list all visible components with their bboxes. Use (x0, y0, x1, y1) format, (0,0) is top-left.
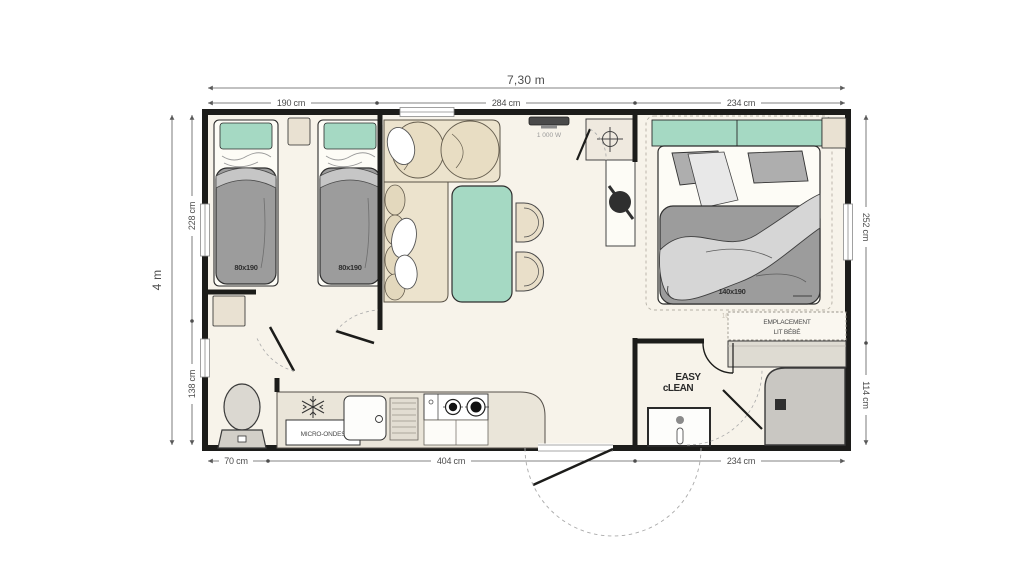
shower-drain-icon (775, 399, 786, 410)
microwave-label: MICRO-ONDES (301, 431, 347, 438)
drainboard (390, 398, 418, 440)
dim-total-width: 7,30 m (208, 73, 845, 88)
dim-right-2: 114 cm (861, 381, 871, 409)
dim-total-width-label: 7,30 m (507, 73, 545, 87)
flush-button (238, 436, 246, 442)
dim-right-1: 252 cm (861, 213, 871, 241)
pillow-teal (220, 123, 272, 149)
dim-total-height: 4 m (150, 115, 172, 445)
heater-power-label: 1 000 W (537, 132, 562, 139)
shower (765, 368, 845, 445)
washbasin (648, 408, 710, 446)
dim-top-3: 234 cm (727, 98, 755, 108)
hall-shelf (213, 296, 245, 326)
pillow-gray (748, 151, 808, 183)
baby-bed-label-1: EMPLACEMENT (763, 319, 811, 326)
bedside-cabinet (822, 118, 846, 148)
bed2-size-label: 80x190 (338, 263, 361, 272)
kitchen-sink (344, 396, 418, 440)
baby-shelf (728, 341, 846, 367)
single-bed-2: 80x190 (318, 120, 382, 286)
floor-plan-page: 7,30 m 190 cm 284 cm 234 cm 4 m (0, 0, 1024, 574)
stove (424, 394, 489, 445)
faucet-icon (677, 428, 683, 444)
drain-icon (676, 416, 684, 424)
dim-top-1: 190 cm (277, 98, 305, 108)
entrance-door-leaf (533, 449, 613, 485)
dim-top-segments: 190 cm 284 cm 234 cm (208, 96, 845, 109)
window-left-wc (201, 339, 210, 377)
bed1-size-label: 80x190 (234, 263, 257, 272)
dim-left-2: 138 cm (187, 370, 197, 398)
window-right-master (844, 204, 853, 260)
dim-bottom-1: 70 cm (224, 456, 248, 466)
toilet-bowl (224, 384, 260, 430)
baby-bed-label-2: LIT BÉBÉ (774, 327, 802, 336)
logo-line-1: EASY (675, 372, 701, 383)
dim-right-segments: 252 cm 114 cm (860, 115, 873, 445)
nightstand (288, 118, 310, 145)
floor-plan: 7,30 m 190 cm 284 cm 234 cm 4 m (0, 0, 1024, 574)
dim-left-1: 228 cm (187, 202, 197, 230)
baby-bed-area: EMPLACEMENT LIT BÉBÉ (728, 312, 846, 367)
double-bed-size-label: 140x190 (718, 287, 745, 296)
dim-bottom-2: 404 cm (437, 456, 465, 466)
entrance-door (525, 444, 701, 537)
heater-icon (529, 117, 569, 125)
window-top-living (400, 108, 454, 117)
dim-total-height-label: 4 m (150, 270, 164, 291)
pillow-teal (324, 123, 376, 149)
fan-icon (609, 191, 631, 213)
water-heater-cabinet (586, 119, 635, 160)
kitchen: MICRO-ONDES (277, 392, 545, 448)
single-bed-1: 80x190 (214, 120, 278, 286)
fan-unit (606, 160, 635, 246)
dim-left-segments: 228 cm 138 cm (185, 115, 198, 445)
dim-bottom-3: 234 cm (727, 456, 755, 466)
dining-table (452, 186, 512, 302)
logo-line-2: cLEAN (663, 383, 694, 394)
dim-top-2: 284 cm (492, 98, 520, 108)
window-left-bedroom (201, 204, 210, 256)
